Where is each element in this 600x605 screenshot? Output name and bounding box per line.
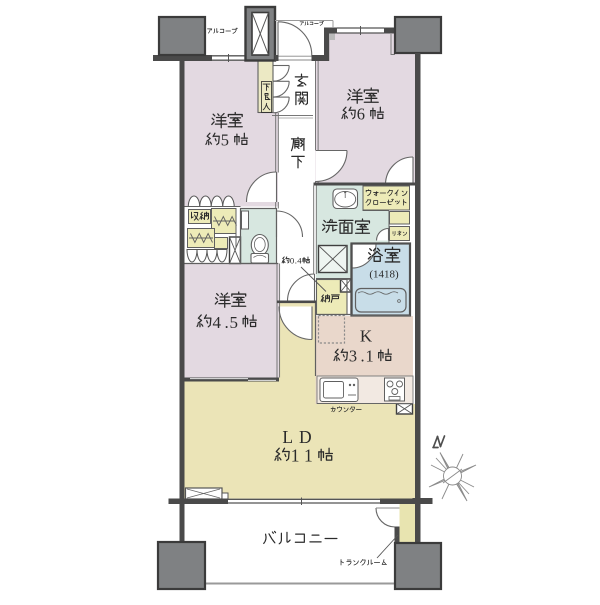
svg-text:.: .: [361, 347, 365, 366]
svg-text:.: .: [224, 313, 228, 332]
svg-text:(1418): (1418): [369, 269, 399, 281]
svg-text:5: 5: [230, 313, 238, 332]
svg-text:3: 3: [349, 347, 357, 366]
svg-text:1: 1: [365, 347, 373, 366]
svg-text:6: 6: [357, 105, 365, 124]
svg-text:K: K: [360, 327, 373, 346]
svg-text:1: 1: [291, 446, 300, 466]
svg-text:4: 4: [297, 256, 302, 266]
svg-text:4: 4: [212, 313, 221, 332]
svg-text:1: 1: [304, 446, 313, 466]
svg-text:5: 5: [221, 131, 229, 150]
svg-text:LD: LD: [282, 427, 317, 447]
